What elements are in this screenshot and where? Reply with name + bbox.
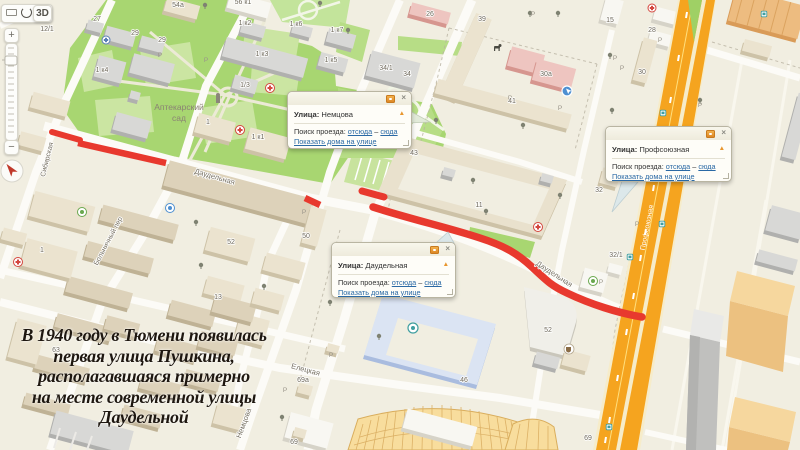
svg-text:52: 52 [544, 327, 552, 334]
svg-text:1 к5: 1 к5 [325, 57, 338, 64]
svg-text:Р: Р [302, 209, 306, 216]
svg-text:Р: Р [613, 55, 617, 62]
svg-text:Р: Р [620, 65, 624, 72]
svg-text:1 к2: 1 к2 [239, 20, 252, 27]
svg-text:1 к7: 1 к7 [331, 27, 344, 34]
svg-text:1: 1 [206, 119, 210, 126]
svg-text:30: 30 [638, 69, 646, 76]
svg-text:50: 50 [302, 233, 310, 240]
svg-text:41: 41 [508, 98, 516, 105]
svg-text:Р: Р [204, 57, 208, 64]
svg-text:52: 52 [227, 239, 235, 246]
svg-text:29: 29 [158, 37, 166, 44]
svg-text:15: 15 [606, 17, 614, 24]
svg-text:56 к1: 56 к1 [235, 0, 252, 6]
svg-text:34/1: 34/1 [379, 65, 393, 72]
svg-text:11: 11 [475, 202, 482, 209]
svg-text:1: 1 [40, 247, 44, 254]
svg-text:Р: Р [658, 37, 662, 44]
svg-text:43: 43 [410, 150, 418, 157]
svg-text:Р: Р [531, 11, 535, 18]
svg-text:12/1: 12/1 [40, 26, 54, 33]
svg-text:26: 26 [426, 11, 434, 18]
svg-text:сад: сад [172, 113, 186, 123]
svg-text:54а: 54а [172, 2, 184, 9]
svg-text:1 к4: 1 к4 [96, 67, 109, 74]
svg-text:1 к1: 1 к1 [252, 134, 265, 141]
svg-text:Р: Р [158, 52, 162, 59]
svg-text:Аптекарский: Аптекарский [154, 102, 204, 112]
svg-text:Р: Р [329, 352, 333, 359]
svg-text:28: 28 [648, 27, 656, 34]
svg-text:1 к6: 1 к6 [290, 21, 303, 28]
svg-text:29: 29 [131, 30, 139, 37]
svg-text:34: 34 [403, 71, 411, 78]
svg-text:32/1: 32/1 [609, 252, 623, 259]
svg-text:Р: Р [599, 279, 603, 286]
svg-text:69: 69 [584, 435, 592, 442]
svg-text:Р: Р [558, 105, 562, 112]
svg-text:Р: Р [635, 221, 639, 228]
svg-text:46: 46 [460, 377, 468, 384]
svg-text:30а: 30а [540, 71, 552, 78]
svg-text:32: 32 [595, 187, 603, 194]
svg-text:69а: 69а [297, 377, 309, 384]
svg-text:1 к3: 1 к3 [256, 51, 269, 58]
svg-text:39: 39 [478, 16, 486, 23]
svg-text:Р: Р [698, 102, 702, 109]
svg-text:13: 13 [214, 294, 222, 301]
svg-text:27: 27 [93, 16, 101, 23]
svg-text:1/3: 1/3 [240, 82, 250, 89]
svg-text:69: 69 [290, 439, 298, 446]
